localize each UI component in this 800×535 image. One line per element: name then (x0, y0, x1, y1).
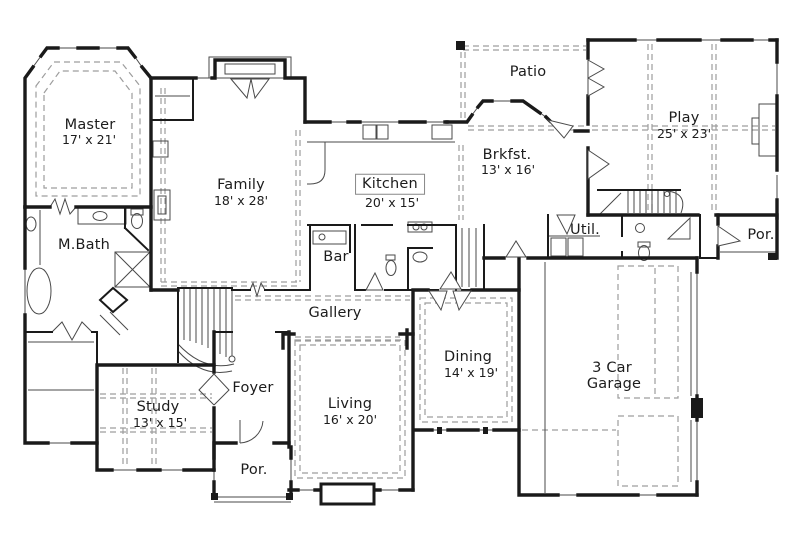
room-label-util: Util. (570, 223, 600, 238)
room-label-garage-line2: Garage (587, 377, 641, 392)
room-label-patio: Patio (510, 65, 547, 80)
room-label-porch-right: Por. (747, 228, 774, 243)
floor-plan: Master 17' x 21' M.Bath Family 18' x 28'… (0, 0, 800, 535)
room-label-mbath: M.Bath (58, 238, 110, 253)
room-dims-kitchen: 20' x 15' (365, 197, 419, 210)
room-dims-family: 18' x 28' (214, 195, 268, 208)
room-dims-dining: 14' x 19' (444, 367, 498, 380)
room-dims-brkfst: 13' x 16' (481, 164, 535, 177)
room-label-play: Play (668, 111, 699, 126)
living-fireplace (321, 484, 374, 504)
room-label-bar: Bar (323, 250, 348, 265)
room-label-gallery: Gallery (308, 306, 361, 321)
room-label-family: Family (217, 178, 265, 193)
room-label-foyer: Foyer (232, 381, 273, 396)
room-label-garage-line1: 3 Car (592, 361, 632, 376)
room-dims-study: 13' x 15' (133, 417, 187, 430)
room-label-porch-front: Por. (240, 463, 267, 478)
closet-diamond (100, 288, 127, 312)
room-dims-play: 25' x 23' (657, 128, 711, 141)
windows-and-details (25, 40, 777, 502)
room-label-kitchen: Kitchen (355, 174, 425, 195)
room-dims-master: 17' x 21' (62, 134, 116, 147)
room-label-brkfst: Brkfst. (483, 148, 532, 163)
floor-plan-drawing (0, 0, 800, 535)
room-label-study: Study (137, 400, 180, 415)
interior-walls (25, 78, 718, 365)
room-label-dining: Dining (444, 350, 492, 365)
door-swings (231, 60, 740, 310)
room-label-master: Master (65, 118, 116, 133)
room-dims-living: 16' x 20' (323, 414, 377, 427)
room-label-living: Living (328, 397, 372, 412)
